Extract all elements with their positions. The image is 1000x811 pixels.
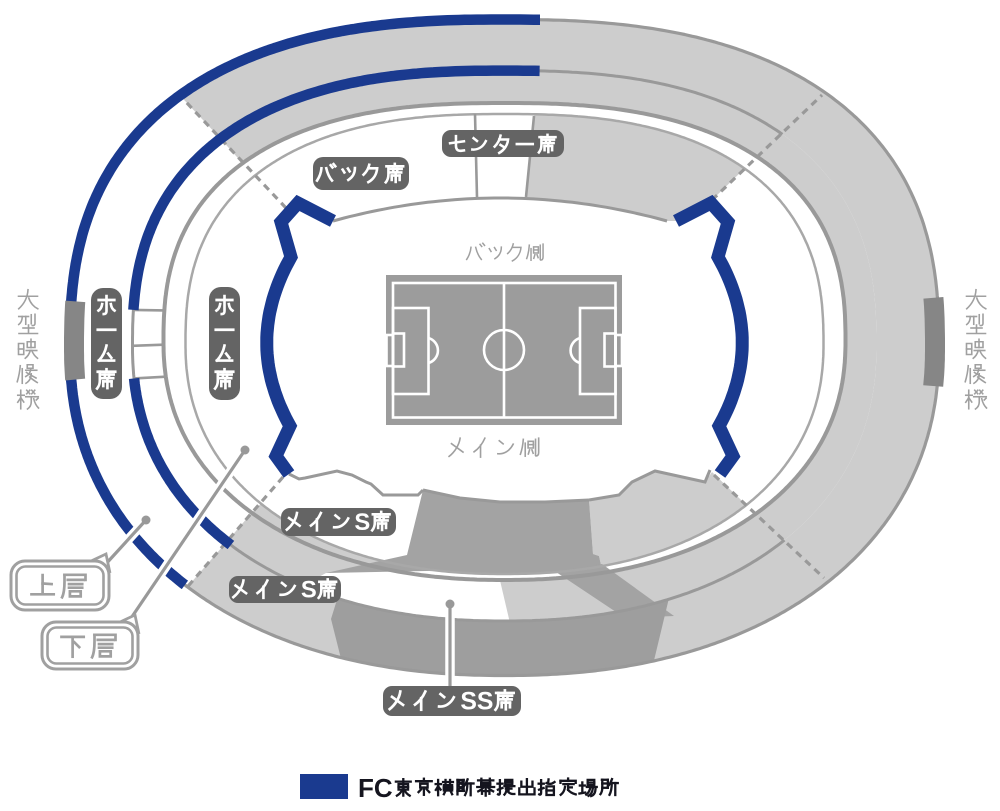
svg-text:S: S [460, 688, 477, 715]
svg-text:S: S [301, 576, 317, 603]
svg-text:S: S [354, 509, 370, 536]
svg-text:S: S [477, 688, 494, 715]
svg-text:FC: FC [358, 773, 393, 803]
